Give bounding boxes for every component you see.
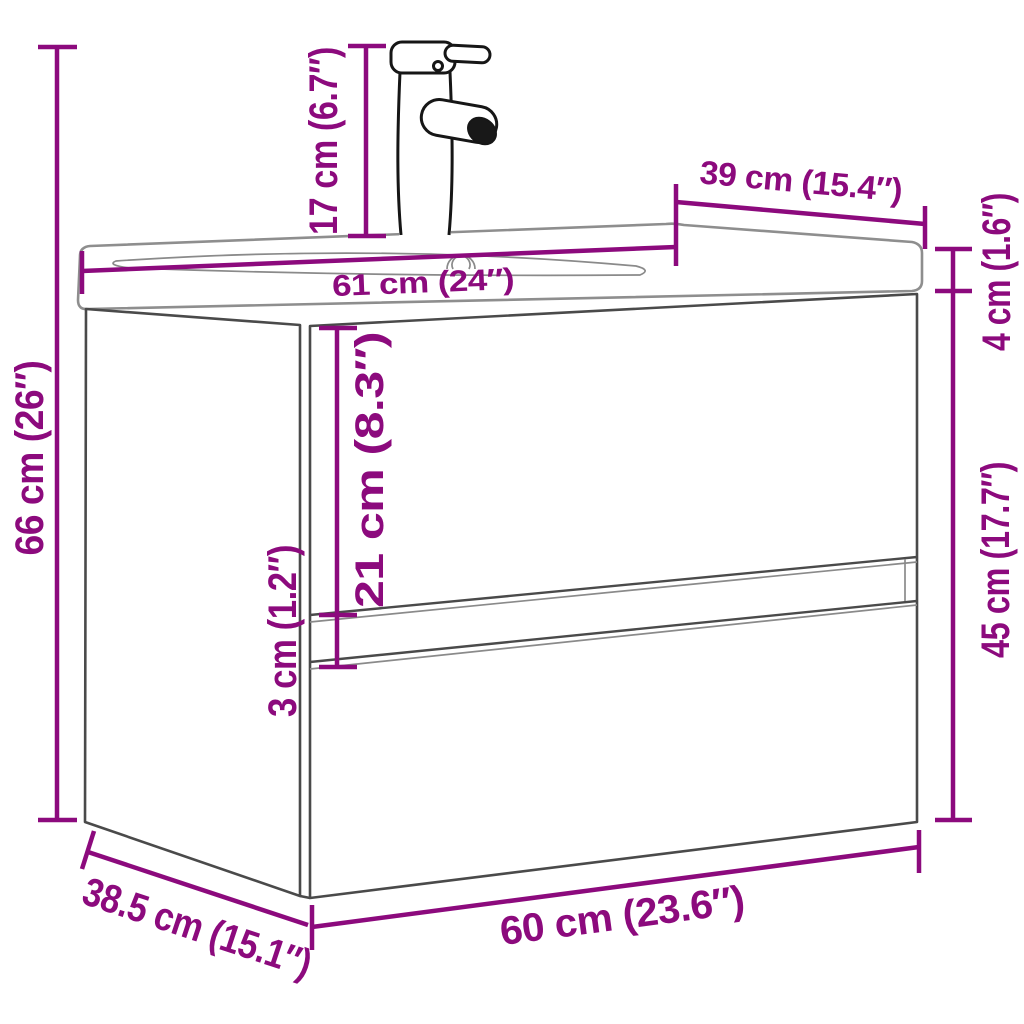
dim-label-cabinet-height: 45 cm (17.7″) (974, 462, 1018, 658)
dim-label-cabinet-width: 60 cm (23.6″) (497, 878, 747, 954)
dimension-overall-height: 66 cm (26″) (8, 47, 77, 820)
faucet-lever-handle (445, 45, 491, 63)
dim-label-basin-thickness: 4 cm (1.6″) (975, 193, 1019, 351)
cabinet (85, 294, 917, 898)
dim-label-basin-depth: 39 cm (15.4″) (698, 153, 904, 208)
dimension-diagram: 66 cm (26″) 17 cm (6.7″) 61 cm (24″) 39 … (0, 0, 1024, 1024)
faucet (391, 42, 501, 236)
dim-label-drawer-front-height: 21 cm (8.3″) (348, 332, 392, 608)
dim-label-faucet-height: 17 cm (6.7″) (302, 47, 346, 235)
faucet-screw (434, 62, 443, 71)
dimension-basin-thickness: 4 cm (1.6″) (935, 193, 1019, 351)
faucet-body-fill (399, 70, 451, 236)
cabinet-front-face (310, 294, 917, 898)
dimension-faucet-height: 17 cm (6.7″) (302, 46, 386, 236)
cabinet-bottom-joint (300, 896, 310, 898)
dimension-cabinet-height: 45 cm (17.7″) (935, 291, 1018, 820)
tick (82, 831, 94, 869)
dim-label-overall-height: 66 cm (26″) (8, 361, 52, 556)
diagram-canvas: 66 cm (26″) 17 cm (6.7″) 61 cm (24″) 39 … (0, 0, 1024, 1024)
dim-label-drawer-gap: 3 cm (1.2″) (261, 545, 305, 717)
